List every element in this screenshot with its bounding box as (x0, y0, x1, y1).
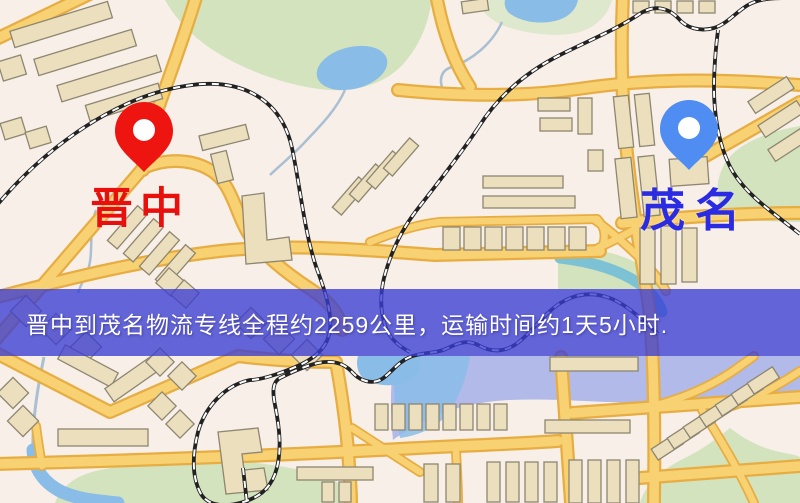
route-info-text: 晋中到茂名物流专线全程约2259公里，运输时间约1天5小时. (0, 306, 668, 340)
origin-city-label: 晋中 (90, 174, 190, 236)
route-info-banner: 晋中到茂名物流专线全程约2259公里，运输时间约1天5小时. (0, 289, 800, 356)
map-canvas[interactable] (0, 0, 800, 503)
destination-city-label: 茂名 (640, 174, 750, 239)
map-screenshot: 晋中 茂名 晋中到茂名物流专线全程约2259公里，运输时间约1天5小时. (0, 0, 800, 503)
